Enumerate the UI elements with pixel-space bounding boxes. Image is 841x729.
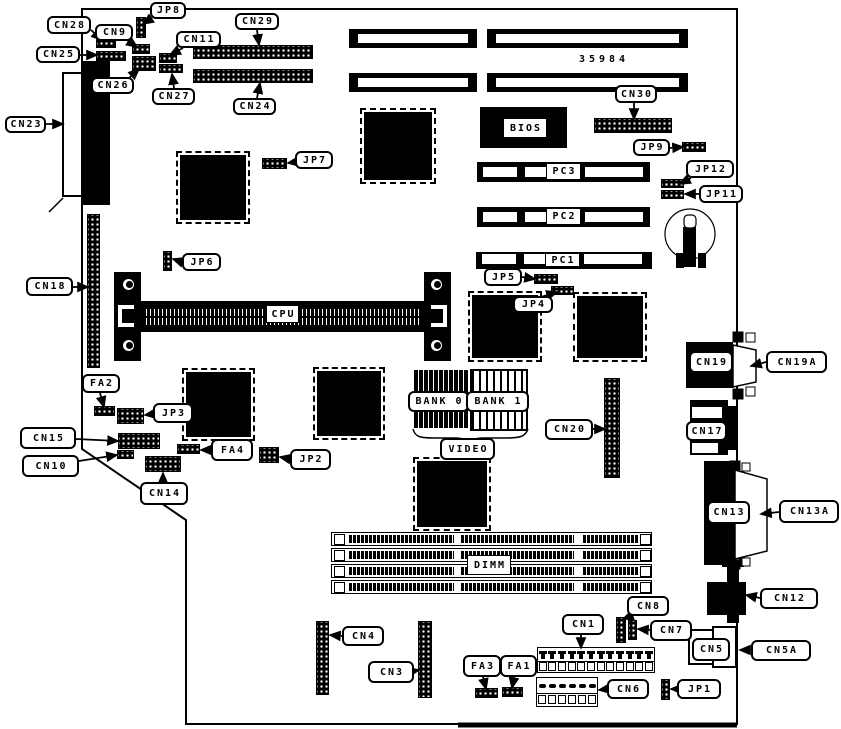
- mounting-tab-3: [746, 387, 755, 396]
- bios-label: BIOS: [503, 118, 547, 138]
- callout-cn3: CN3: [368, 661, 414, 683]
- callout-cn5a: CN5A: [751, 640, 811, 661]
- mounting-tab-1: [746, 333, 755, 342]
- leader-fa2: [100, 393, 104, 407]
- callout-jp1: JP1: [677, 679, 721, 699]
- leader-jp2: [280, 457, 290, 459]
- callout-cn28: CN28: [47, 16, 91, 34]
- motherboard-diagram: PC3PC2PC1CN28JP8CN9CN25CN11CN29CN26CN27C…: [0, 0, 841, 729]
- mounting-tab-0: [733, 332, 743, 342]
- leader-cn15: [76, 439, 118, 441]
- leader-cn29: [257, 30, 259, 45]
- callout-cn18: CN18: [26, 277, 73, 296]
- leader-cn24: [257, 83, 260, 98]
- callout-cn8: CN8: [627, 596, 669, 616]
- leader-cn11: [170, 48, 183, 55]
- callout-jp9: JP9: [633, 139, 670, 156]
- part-number: 35984: [574, 52, 632, 67]
- callout-cn20: CN20: [545, 419, 593, 440]
- leader-cn27: [172, 74, 174, 88]
- callout-fa3: FA3: [463, 655, 501, 677]
- leader-jp9: [670, 147, 683, 148]
- leader-jp3: [145, 414, 153, 415]
- battery-cap: [684, 215, 696, 228]
- callout-bank0: BANK 0: [408, 391, 469, 412]
- callout-cn25: CN25: [36, 46, 80, 63]
- leader-cn6: [599, 689, 607, 690]
- battery-foot-0: [676, 253, 684, 268]
- battery-foot-1: [698, 253, 706, 268]
- mounting-tab-7: [742, 558, 750, 566]
- callout-jp2: JP2: [290, 449, 331, 470]
- callout-cn30: CN30: [615, 85, 657, 103]
- mounting-tab-2: [733, 389, 743, 399]
- callout-cn26: CN26: [91, 77, 134, 94]
- leader-jp8: [143, 18, 152, 24]
- leader-cn7: [638, 629, 650, 630]
- callout-jp7: JP7: [295, 151, 333, 169]
- leader-fa1: [512, 677, 514, 688]
- leader-fa3: [483, 677, 486, 689]
- callout-cn4: CN4: [342, 626, 384, 646]
- callout-cn11: CN11: [176, 31, 221, 48]
- leader-cn3: [414, 670, 419, 671]
- callout-cn14: CN14: [140, 482, 188, 505]
- callout-fa1: FA1: [500, 655, 537, 677]
- callout-jp3: JP3: [153, 403, 193, 423]
- callout-cn19: CN19: [689, 351, 733, 373]
- mounting-tab-6: [730, 560, 740, 569]
- cpu-label: CPU: [266, 305, 299, 323]
- leader-cn4: [330, 635, 342, 636]
- mounting-tab-5: [742, 463, 750, 471]
- callout-cn10: CN10: [22, 455, 79, 477]
- callout-cn6: CN6: [607, 679, 649, 699]
- callout-jp11: JP11: [699, 185, 743, 203]
- callout-cn19a: CN19A: [766, 351, 827, 373]
- callout-jp4: JP4: [513, 296, 553, 313]
- callout-cn27: CN27: [152, 88, 195, 105]
- callout-cn13a: CN13A: [779, 500, 839, 523]
- leader-jp12: [680, 178, 691, 184]
- callout-cn13: CN13: [707, 501, 750, 524]
- callout-cn23: CN23: [5, 116, 46, 133]
- leader-cn8: [623, 616, 631, 619]
- leader-cn12: [746, 595, 760, 598]
- callout-cn24: CN24: [233, 98, 276, 115]
- callout-cn12: CN12: [760, 588, 818, 609]
- callout-jp5: JP5: [484, 268, 522, 286]
- mounting-tab-4: [730, 461, 740, 470]
- callout-jp6: JP6: [182, 253, 221, 271]
- callout-cn7: CN7: [650, 620, 692, 641]
- callout-cn1: CN1: [562, 614, 604, 635]
- callout-bank1: BANK 1: [466, 391, 529, 412]
- callout-video: VIDEO: [440, 438, 495, 460]
- callout-cn15: CN15: [20, 427, 76, 449]
- leader-jp5: [522, 277, 535, 279]
- leader-cn9: [127, 40, 137, 47]
- dimm-label: DIMM: [467, 555, 511, 575]
- callout-cn9: CN9: [95, 24, 133, 41]
- callout-cn5: CN5: [692, 638, 730, 661]
- callout-fa4: FA4: [211, 439, 253, 461]
- battery-stem: [683, 227, 696, 267]
- callout-cn29: CN29: [235, 13, 279, 30]
- callout-cn17: CN17: [686, 421, 727, 441]
- leader-jp6: [173, 259, 182, 262]
- callout-fa2: FA2: [82, 374, 120, 393]
- leader-cn10: [79, 455, 117, 461]
- leader-jp7: [288, 162, 295, 163]
- callout-jp8: JP8: [150, 2, 186, 19]
- callout-jp12: JP12: [686, 160, 734, 178]
